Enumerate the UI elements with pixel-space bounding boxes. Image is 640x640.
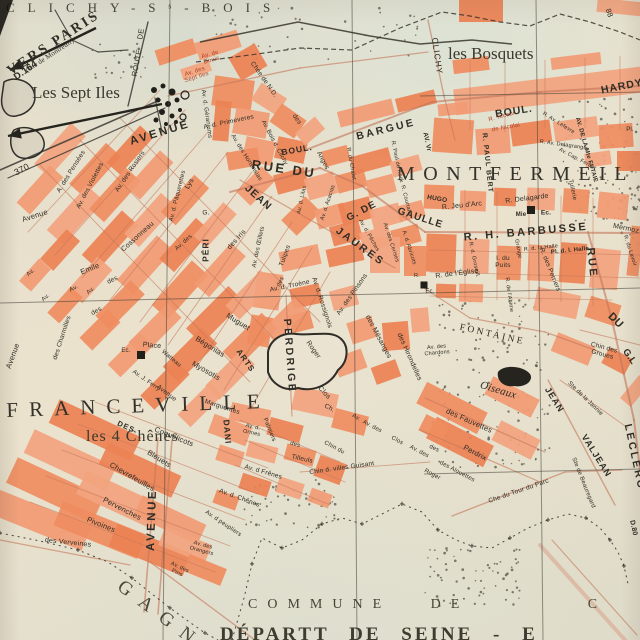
street-label: LECLERC	[622, 423, 640, 491]
street-label: Av. des Violettes	[76, 162, 106, 210]
street-label: Av.	[26, 268, 37, 278]
street-label: des Mésanges	[364, 314, 393, 360]
street-label: FONTAINE	[458, 324, 525, 349]
street-label: I. du Puits	[495, 256, 510, 270]
boundary-label-departement: DÉPARTT DE SEINE - E	[220, 624, 538, 640]
street-label: des Charmilles	[53, 315, 74, 361]
street-label: des Alouettes	[438, 460, 475, 484]
street-label: A. d. Abricots	[400, 230, 416, 265]
street-label: Watteau	[160, 349, 182, 369]
street-label: ARTS	[234, 348, 256, 374]
boundary-label-commune: COMMUNE DE C	[248, 597, 607, 613]
place-label-les-sept-iles: Les Sept Iles	[32, 83, 120, 103]
street-label: des	[428, 444, 440, 454]
street-label: Av. d. Chênes	[218, 488, 261, 509]
street-label: Av. de Douis	[201, 50, 221, 67]
street-label: GAULLE	[396, 207, 444, 232]
street-label: Av. d Frênes	[243, 464, 282, 481]
street-label: des Iris	[226, 229, 248, 252]
street-label: R. du Lavoir	[621, 235, 636, 267]
street-label: R. Av. Lefevre	[541, 112, 575, 136]
street-label: Av. des Rosiers	[115, 150, 147, 194]
street-label: G.	[202, 211, 209, 218]
street-label: Clos	[316, 385, 331, 401]
street-label: R. de l'Abime	[503, 277, 514, 313]
street-label: Av. d peupliers	[204, 510, 242, 539]
street-label: des Fauvettes	[445, 407, 494, 434]
street-label: R. Delagarde	[505, 193, 549, 206]
street-label: Ec.	[121, 348, 130, 354]
street-label: Cossonneau	[120, 220, 156, 253]
street-label: Place	[142, 342, 161, 351]
street-label: Av. d. Troène	[269, 279, 310, 294]
street-label: Av. des	[174, 234, 194, 253]
street-label: Av. des	[408, 444, 429, 459]
street-label: Pivoines	[86, 516, 117, 535]
street-label: DU	[605, 311, 625, 331]
street-label: Clos	[390, 435, 404, 447]
street-label: Mie	[516, 212, 527, 218]
street-label: 370	[13, 162, 31, 178]
street-label: Perdrix	[462, 444, 488, 463]
street-label: Avenue	[21, 208, 49, 224]
street-label: Pl.	[626, 127, 634, 133]
place-label-montfermeil: MONTFERMEIL	[397, 163, 635, 186]
street-label: 88	[604, 8, 614, 19]
street-label: BARGUE	[355, 117, 416, 142]
street-label: des	[290, 114, 302, 127]
street-label: Av. d. Pâquerettes	[169, 170, 188, 222]
street-label: Av. des Pins	[167, 562, 189, 581]
street-label: Chin du	[323, 440, 345, 456]
street-label: Ec.	[425, 289, 434, 295]
street-label: Chée de N.D.	[248, 61, 278, 99]
street-label: Bleuets	[146, 449, 173, 470]
street-label: R.	[414, 274, 420, 280]
street-label: Lys	[184, 177, 196, 190]
street-label: Av. d. Ormes	[242, 424, 262, 439]
street-label: Av.	[69, 284, 80, 294]
street-label: Av. des	[361, 419, 382, 434]
street-label: PERDRIGE	[281, 318, 297, 393]
street-label: HARDY	[600, 78, 640, 97]
street-label: Muguet	[225, 312, 251, 333]
street-label: Roger	[423, 468, 441, 482]
street-label: des	[107, 276, 120, 287]
street-label: Av. d. Acacias	[321, 185, 338, 222]
street-label: Tilleuls	[291, 454, 314, 465]
street-label: AV. Vr	[421, 132, 432, 152]
street-label: Emile	[79, 262, 100, 277]
street-label: Myosotis	[191, 360, 222, 382]
street-label: Oiseaux	[478, 380, 517, 402]
street-label: Avenue	[5, 342, 21, 370]
street-label: PÉRI	[202, 238, 211, 262]
street-label: Ec.	[541, 211, 551, 218]
street-label: de Nicolai	[491, 122, 520, 133]
street-label: G.L	[620, 347, 638, 366]
street-label: Chin des Groues	[588, 342, 618, 362]
street-label: Av. des Orangers	[189, 540, 216, 557]
street-label: Ste de la Jannie	[566, 381, 604, 418]
street-label: R. du Chalet	[344, 147, 355, 180]
street-label: Grange	[512, 239, 521, 259]
place-label-les-bosquets: les Bosquets	[448, 44, 533, 64]
street-label: JEAN	[242, 183, 273, 213]
street-label: Mermoz	[612, 223, 639, 236]
street-label: Chevrefeuilles	[108, 461, 156, 493]
street-label: Av. des Sept Iles	[182, 65, 210, 85]
street-label: AVENUE	[129, 118, 192, 148]
street-label: Bégonias	[194, 335, 226, 359]
place-label-les-4-chenes: les 4 Chênes	[86, 428, 179, 446]
street-label: RUE	[584, 247, 599, 279]
street-label: Av. des Pinsons	[336, 273, 370, 317]
street-label: Av.	[41, 293, 52, 303]
street-label: DANI	[221, 419, 232, 444]
street-label: R. H. BARBUSSE	[463, 222, 588, 244]
street-label: JEAN	[543, 386, 566, 415]
street-label: Ste de Beauregard	[570, 457, 596, 509]
place-label-clichy-sous-bois: CLICHY-Sˢ-BOIS	[6, 0, 283, 16]
street-label: DE	[136, 28, 146, 40]
map-image: ++++++++++++++++++ ROUTEDEVERS PARIS(Rte…	[0, 0, 640, 640]
street-label: ROUTE	[131, 49, 143, 77]
street-label: des	[289, 441, 301, 450]
street-label: VALJEAN	[579, 433, 613, 479]
street-label: R. Jeu d'Arc	[442, 200, 483, 212]
street-label: R. de l'Église	[435, 268, 479, 281]
street-label: Ch.	[323, 403, 336, 414]
street-label: Roger	[304, 340, 322, 361]
street-label: Av.	[351, 413, 362, 423]
street-label: Av. des Chardons	[424, 344, 450, 358]
street-label: AVENUE	[145, 489, 159, 551]
street-label: CLICHY	[430, 37, 444, 75]
street-label: des	[90, 306, 103, 317]
street-label: des Verveines	[44, 537, 91, 549]
street-label: BOUL.	[281, 143, 314, 157]
street-label: Che du Tour du Parc	[488, 478, 550, 505]
street-label: Av. des Œillets	[252, 226, 267, 269]
street-label: A. d. Primeveres	[203, 114, 255, 131]
street-label: des Hirondelles	[395, 332, 423, 382]
street-label: Chin d. villes Guisant	[309, 461, 375, 477]
street-label: Av. d. Rossignols	[310, 277, 333, 330]
street-label: Tulipes	[279, 244, 293, 267]
street-label: Av.	[86, 286, 97, 296]
street-label: D.80	[628, 520, 638, 537]
street-label: Av. d. Lilas	[297, 185, 309, 214]
street-label: Pervenches	[102, 496, 143, 522]
street-label: Palmiers	[261, 417, 276, 442]
street-label: A. des Pensées	[56, 150, 87, 195]
